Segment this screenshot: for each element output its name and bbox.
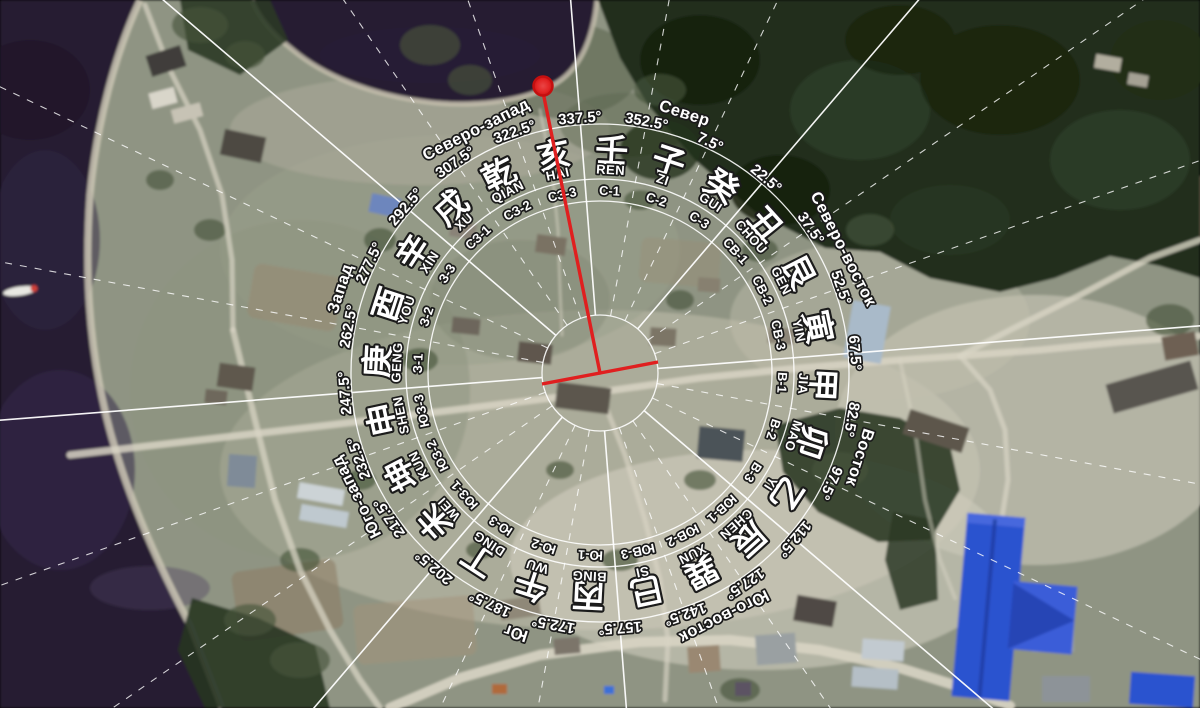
sector-code-slot: В-1 bbox=[774, 372, 790, 394]
sector-line-dashed bbox=[619, 428, 840, 708]
sector-code: Ю-3 bbox=[486, 513, 515, 539]
direction-label: Юг bbox=[501, 620, 530, 645]
degree-label-slot: 247.5° bbox=[335, 371, 355, 416]
sector-code-slot: З-2 bbox=[416, 305, 436, 328]
sector-code: В-1 bbox=[774, 372, 790, 394]
sector-code-slot: ЮВ-3 bbox=[620, 541, 657, 563]
sector-line-dashed bbox=[0, 242, 543, 363]
sector-line-solid bbox=[658, 317, 1200, 369]
degree-label: 277.5° bbox=[352, 240, 386, 287]
sector-code-slot: З-1 bbox=[410, 353, 426, 373]
map-viewport[interactable]: 子ZIС-2癸GUIС-3丑CHOUСВ-1艮GENСВ-2寅YINСВ-3甲J… bbox=[0, 0, 1200, 708]
location-pin[interactable] bbox=[534, 77, 553, 96]
degree-label-slot: 97.5° bbox=[815, 463, 845, 502]
sector-code: СЗ-2 bbox=[501, 197, 534, 223]
direction-label-slot: Юг bbox=[501, 620, 530, 645]
degree-label-slot: 187.5° bbox=[467, 587, 514, 621]
mountain-pinyin-slot: JIA bbox=[795, 372, 811, 395]
degree-label: 337.5° bbox=[558, 108, 603, 128]
degree-label: 67.5° bbox=[845, 335, 865, 371]
mountain-pinyin-slot: REN bbox=[596, 162, 626, 178]
degree-label-slot: 157.5° bbox=[598, 618, 643, 638]
degree-label: 187.5° bbox=[467, 587, 514, 621]
degree-label-slot: 337.5° bbox=[558, 108, 603, 128]
sector-code: З-1 bbox=[410, 353, 426, 373]
degree-label: 247.5° bbox=[335, 371, 355, 416]
degree-label-slot: 22.5° bbox=[747, 161, 785, 197]
mountain-pinyin: BING bbox=[572, 568, 607, 585]
sector-code-slot: ЮЗ-3 bbox=[411, 393, 433, 429]
sector-code: Ю-1 bbox=[578, 547, 604, 563]
sector-code-slot: В-2 bbox=[763, 417, 784, 442]
sector-code-slot: СВ-3 bbox=[768, 319, 789, 352]
sector-code-slot: С-1 bbox=[599, 183, 621, 199]
sector-code: С-1 bbox=[599, 183, 621, 199]
degree-label-slot: 277.5° bbox=[352, 240, 386, 287]
sector-line-solid bbox=[0, 378, 542, 430]
sector-code: С-2 bbox=[644, 189, 669, 210]
degree-label: 157.5° bbox=[598, 618, 643, 638]
degree-label: 292.5° bbox=[385, 185, 426, 229]
sector-line-solid bbox=[644, 411, 1147, 708]
mountain-pinyin-slot: BING bbox=[572, 568, 607, 585]
degree-label-slot: 112.5° bbox=[774, 517, 815, 561]
mountain-pinyin: JIA bbox=[795, 372, 811, 395]
degree-label-slot: 202.5° bbox=[412, 547, 456, 588]
sector-code: ЮЗ-3 bbox=[411, 393, 433, 429]
degree-label-slot: 67.5° bbox=[845, 335, 865, 371]
luopan-compass-overlay: 子ZIС-2癸GUIС-3丑CHOUСВ-1艮GENСВ-2寅YINСВ-3甲J… bbox=[0, 0, 1200, 708]
mountain-pinyin-slot: GENG bbox=[388, 342, 405, 383]
mountain-pinyin: REN bbox=[596, 162, 626, 178]
sector-code: ЮВ-3 bbox=[620, 541, 657, 563]
degree-label: 97.5° bbox=[815, 463, 845, 502]
sector-code-slot: Ю-1 bbox=[578, 547, 604, 563]
sector-code: З-2 bbox=[416, 305, 436, 328]
luopan-ring: 子ZIС-2癸GUIС-3丑CHOUСВ-1艮GENСВ-2寅YINСВ-3甲J… bbox=[0, 0, 1200, 708]
degree-label-slot: 292.5° bbox=[385, 185, 426, 229]
degree-label: 112.5° bbox=[774, 517, 815, 561]
mountain-pinyin: GENG bbox=[388, 342, 405, 383]
sector-code: СВ-3 bbox=[768, 319, 789, 352]
degree-label-slot: 172.5° bbox=[530, 612, 576, 637]
sector-line-dashed bbox=[657, 384, 1200, 505]
sector-code-slot: С-2 bbox=[644, 189, 669, 210]
sector-code-slot: СЗ-2 bbox=[501, 197, 534, 223]
degree-label: 172.5° bbox=[530, 612, 576, 637]
sector-code: В-2 bbox=[763, 417, 784, 442]
degree-label-slot: 7.5° bbox=[694, 129, 726, 156]
degree-label: 7.5° bbox=[694, 129, 726, 156]
sector-code-slot: Ю-3 bbox=[486, 513, 515, 539]
degree-label: 22.5° bbox=[747, 161, 785, 197]
degree-label: 202.5° bbox=[412, 547, 456, 588]
